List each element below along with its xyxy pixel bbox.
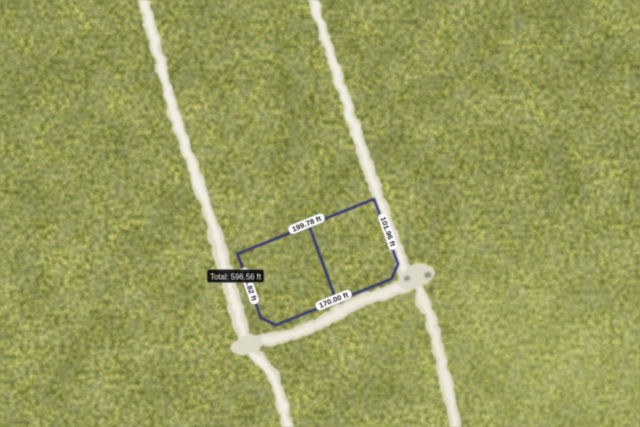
svg-text:Total: 596.56 ft: Total: 596.56 ft: [210, 272, 262, 282]
